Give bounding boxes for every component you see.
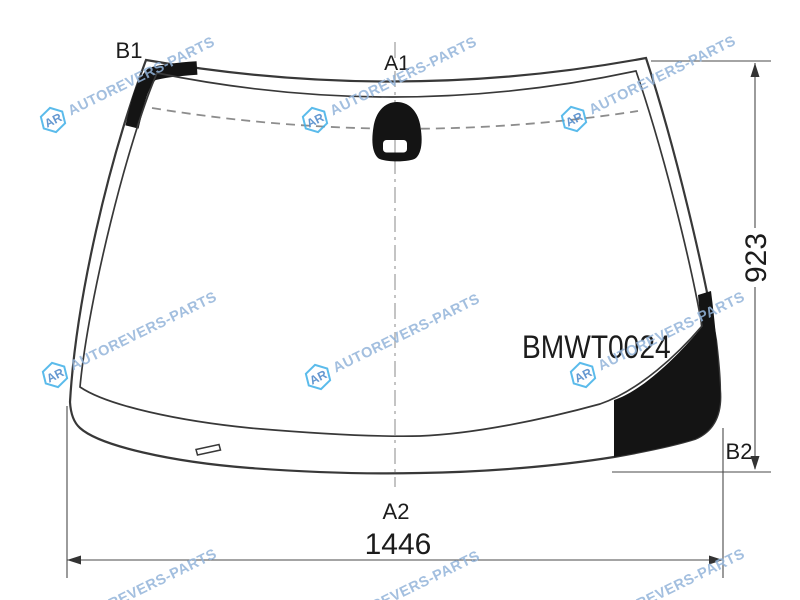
label-b1: B1 bbox=[116, 40, 143, 62]
dimension-width-value: 1446 bbox=[365, 530, 432, 560]
label-b2: B2 bbox=[726, 441, 753, 463]
arrow-right-icon bbox=[709, 556, 723, 565]
arrow-up-icon bbox=[751, 63, 760, 77]
arrow-left-icon bbox=[67, 556, 81, 565]
windshield-diagram: B1 A1 B2 A2 1446 923 BMWT0024 AR AUTOREV… bbox=[0, 0, 800, 600]
label-a2: A2 bbox=[383, 501, 410, 523]
label-a1: A1 bbox=[384, 53, 410, 74]
part-number: BMWT0024 bbox=[522, 331, 671, 363]
dimension-height-value: 923 bbox=[741, 227, 773, 289]
